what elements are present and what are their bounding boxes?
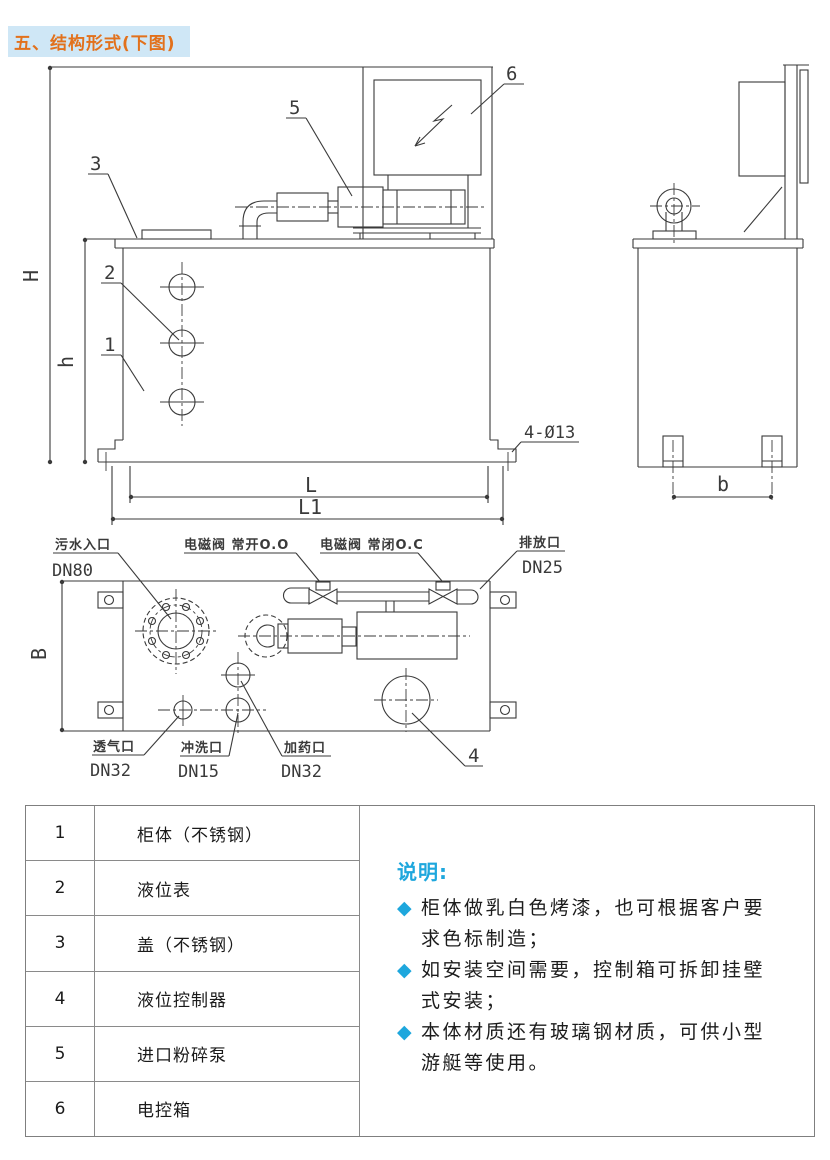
parts-and-notes-table: 1 柜体（不锈钢） 2 液位表 3 盖（不锈钢） 4 液位控制器 5 进口粉碎泵… — [25, 805, 815, 1137]
svg-text:4-Ø13: 4-Ø13 — [524, 423, 575, 443]
diamond-bullet-icon: ◆ — [397, 893, 412, 924]
control-box — [363, 67, 492, 239]
note-text: 柜体做乳白色烤漆，也可根据客户要求色标制造； — [421, 897, 765, 950]
svg-text:DN32: DN32 — [90, 761, 131, 781]
label-mounting-holes: 4-Ø13 — [512, 423, 579, 452]
table-row: 3 盖（不锈钢） — [26, 916, 359, 971]
part-number: 4 — [26, 972, 95, 1026]
svg-text:2: 2 — [104, 262, 115, 284]
plan-view: B — [27, 535, 565, 782]
side-view: b — [633, 65, 809, 501]
lightning-icon — [415, 105, 452, 146]
dim-H: H — [19, 66, 493, 464]
svg-text:b: b — [717, 472, 729, 496]
part-name: 柜体（不锈钢） — [95, 806, 359, 860]
label-vent: 透气口 DN32 — [90, 716, 179, 781]
svg-text:B: B — [27, 648, 51, 660]
part-name: 进口粉碎泵 — [95, 1027, 359, 1081]
svg-text:透气口: 透气口 — [93, 739, 135, 755]
macerator-pump — [235, 187, 485, 239]
svg-text:污水入口: 污水入口 — [55, 537, 111, 553]
svg-text:3: 3 — [90, 153, 101, 175]
svg-text:L1: L1 — [298, 495, 322, 519]
part-number: 5 — [26, 1027, 95, 1081]
level-controller — [374, 668, 438, 732]
svg-text:H: H — [19, 270, 43, 282]
part-name: 电控箱 — [95, 1082, 359, 1136]
svg-text:冲洗口: 冲洗口 — [181, 740, 223, 756]
svg-text:排放口: 排放口 — [519, 535, 561, 551]
notes-body: ◆ 柜体做乳白色烤漆，也可根据客户要求色标制造； ◆ 如安装空间需要，控制箱可拆… — [397, 893, 773, 1079]
svg-text:L: L — [305, 473, 317, 497]
diamond-bullet-icon: ◆ — [397, 955, 412, 986]
table-row: 4 液位控制器 — [26, 972, 359, 1027]
table-row: 1 柜体（不锈钢） — [26, 806, 359, 861]
notes-title: 说明: — [397, 856, 814, 885]
svg-text:DN25: DN25 — [522, 558, 563, 578]
pump-elbow-side — [650, 183, 700, 245]
svg-text:加药口: 加药口 — [283, 740, 326, 756]
callout-5: 5 — [286, 97, 352, 196]
diamond-bullet-icon: ◆ — [397, 1017, 412, 1048]
svg-text:4: 4 — [468, 745, 479, 767]
note-item: ◆ 本体材质还有玻璃钢材质，可供小型游艇等使用。 — [397, 1017, 773, 1079]
callout-2: 2 — [101, 262, 179, 340]
callout-4: 4 — [412, 713, 483, 767]
svg-text:1: 1 — [104, 334, 115, 356]
svg-text:DN32: DN32 — [281, 762, 322, 782]
part-name: 液位表 — [95, 861, 359, 915]
part-name: 盖（不锈钢） — [95, 916, 359, 970]
part-number: 6 — [26, 1082, 95, 1136]
svg-text:电磁阀 常闭O.C: 电磁阀 常闭O.C — [320, 537, 424, 553]
control-box-side — [739, 82, 785, 176]
label-drain: 排放口 DN25 — [480, 535, 565, 589]
part-number: 3 — [26, 916, 95, 970]
callout-3: 3 — [88, 153, 137, 238]
part-number: 1 — [26, 806, 95, 860]
note-item: ◆ 柜体做乳白色烤漆，也可根据客户要求色标制造； — [397, 893, 773, 955]
svg-text:6: 6 — [506, 63, 517, 85]
pump-plan — [238, 612, 470, 659]
table-row: 5 进口粉碎泵 — [26, 1027, 359, 1082]
part-number: 2 — [26, 861, 95, 915]
note-item: ◆ 如安装空间需要，控制箱可拆卸挂壁式安装； — [397, 955, 773, 1017]
svg-text:DN15: DN15 — [178, 762, 219, 782]
inlet-flange — [135, 589, 218, 674]
dim-b: b — [672, 440, 773, 501]
note-text: 如安装空间需要，控制箱可拆卸挂壁式安装； — [421, 959, 765, 1012]
label-valve-open: 电磁阀 常开O.O — [184, 537, 320, 582]
technical-drawing: H h — [0, 0, 830, 795]
svg-text:电磁阀 常开O.O: 电磁阀 常开O.O — [184, 537, 289, 553]
table-row: 6 电控箱 — [26, 1082, 359, 1136]
tank-body — [98, 248, 516, 471]
notes-panel: 说明: ◆ 柜体做乳白色烤漆，也可根据客户要求色标制造； ◆ 如安装空间需要，控… — [359, 806, 814, 1136]
note-text: 本体材质还有玻璃钢材质，可供小型游艇等使用。 — [421, 1021, 765, 1074]
table-row: 2 液位表 — [26, 861, 359, 916]
label-valve-closed: 电磁阀 常闭O.C — [320, 537, 442, 581]
part-name: 液位控制器 — [95, 972, 359, 1026]
svg-text:DN80: DN80 — [52, 561, 93, 581]
callout-6: 6 — [471, 63, 524, 114]
dim-B: B — [27, 580, 64, 732]
mounting-lugs — [98, 592, 516, 718]
solenoid-piping — [284, 582, 478, 612]
svg-text:5: 5 — [289, 97, 300, 119]
level-gauges — [160, 262, 204, 426]
label-flush: 冲洗口 DN15 — [178, 713, 238, 782]
svg-text:h: h — [54, 356, 78, 368]
front-view: H h — [19, 63, 579, 525]
parts-list: 1 柜体（不锈钢） 2 液位表 3 盖（不锈钢） 4 液位控制器 5 进口粉碎泵… — [26, 806, 359, 1136]
catalog-page: 五、结构形式(下图) H h — [0, 0, 830, 1160]
